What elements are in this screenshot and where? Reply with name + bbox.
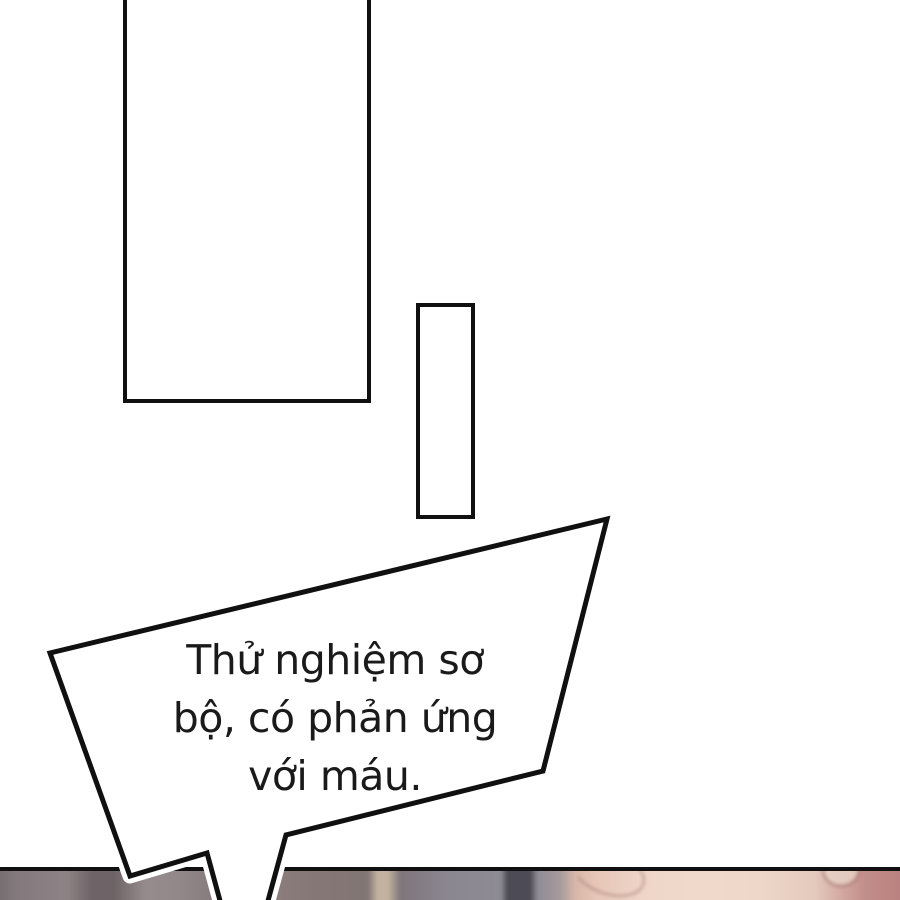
speech-line-3: với máu. (118, 747, 552, 805)
speech-line-2: bộ, có phản ứng (118, 689, 552, 747)
speech-line-1: Thử nghiệm sơ (118, 631, 552, 689)
comic-page: Thử nghiệm sơ bộ, có phản ứng với máu. (0, 0, 900, 900)
speech-bubble-text: Thử nghiệm sơ bộ, có phản ứng với máu. (118, 631, 552, 805)
